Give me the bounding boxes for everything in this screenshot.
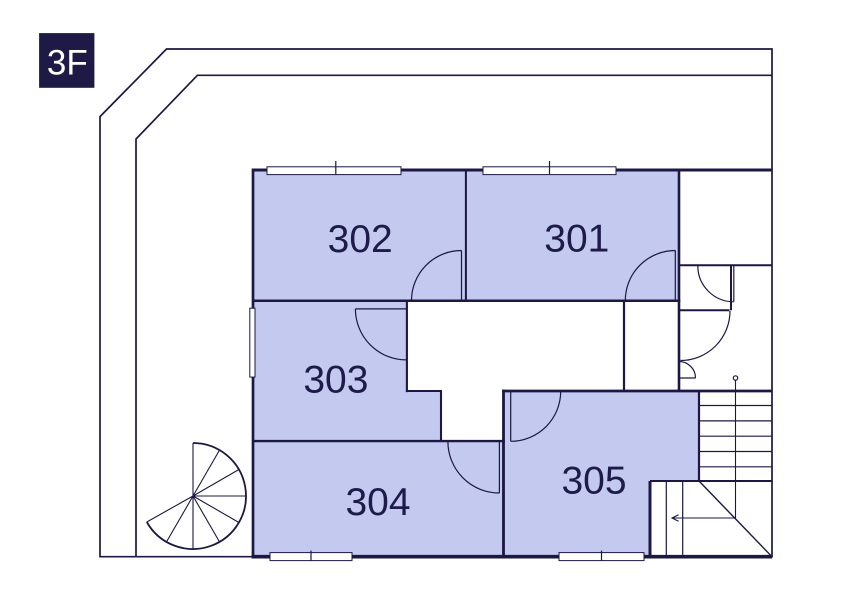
- svg-text:301: 301: [544, 218, 609, 261]
- svg-text:303: 303: [303, 359, 368, 402]
- svg-text:304: 304: [345, 481, 410, 524]
- svg-text:302: 302: [328, 218, 393, 261]
- svg-text:305: 305: [561, 460, 626, 503]
- svg-text:3F: 3F: [47, 44, 88, 83]
